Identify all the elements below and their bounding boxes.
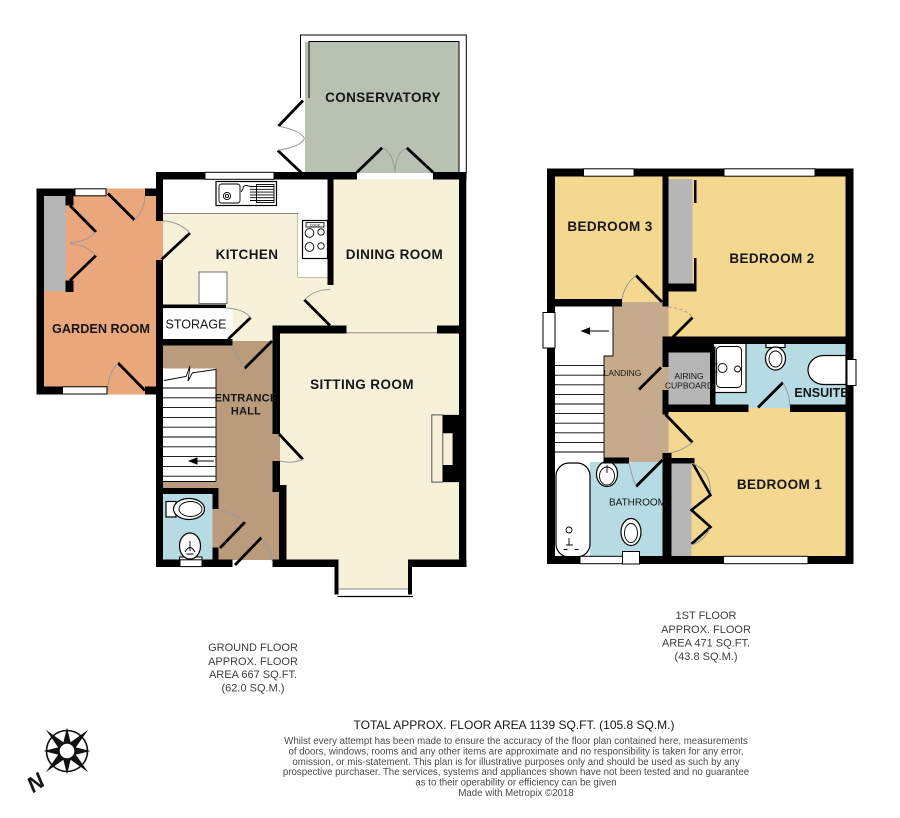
svg-text:COOK: COOK bbox=[310, 223, 321, 227]
svg-text:N: N bbox=[22, 767, 50, 797]
svg-text:AIRING: AIRING bbox=[674, 371, 703, 381]
svg-text:CUPBOARD: CUPBOARD bbox=[665, 381, 713, 391]
svg-text:KITCHEN: KITCHEN bbox=[216, 247, 279, 262]
svg-text:APPROX. FLOOR: APPROX. FLOOR bbox=[661, 624, 751, 636]
svg-text:BEDROOM 1: BEDROOM 1 bbox=[737, 477, 822, 492]
svg-text:LANDING: LANDING bbox=[604, 368, 642, 378]
svg-text:AREA 471 SQ.FT.: AREA 471 SQ.FT. bbox=[662, 638, 750, 650]
svg-text:as to their operability or eff: as to their operability or efficiency ca… bbox=[415, 778, 616, 789]
svg-text:TOTAL APPROX. FLOOR AREA 1139: TOTAL APPROX. FLOOR AREA 1139 SQ.FT. (10… bbox=[354, 718, 675, 732]
svg-text:BEDROOM 3: BEDROOM 3 bbox=[567, 219, 652, 234]
svg-text:(43.8 SQ.M.): (43.8 SQ.M.) bbox=[675, 651, 738, 663]
svg-text:ENTRANCE: ENTRANCE bbox=[215, 393, 278, 405]
svg-text:1ST FLOOR: 1ST FLOOR bbox=[676, 610, 737, 622]
svg-text:AREA 667 SQ.FT.: AREA 667 SQ.FT. bbox=[209, 669, 297, 681]
svg-text:ENSUITE: ENSUITE bbox=[794, 386, 848, 400]
svg-text:APPROX. FLOOR: APPROX. FLOOR bbox=[208, 656, 298, 668]
svg-text:STORAGE: STORAGE bbox=[166, 318, 227, 332]
svg-text:(62.0 SQ.M.): (62.0 SQ.M.) bbox=[222, 683, 285, 695]
svg-text:CONSERVATORY: CONSERVATORY bbox=[325, 90, 441, 105]
svg-text:GROUND FLOOR: GROUND FLOOR bbox=[208, 642, 298, 654]
svg-text:of doors, windows, rooms and a: of doors, windows, rooms and any other i… bbox=[289, 747, 744, 758]
svg-text:DINING ROOM: DINING ROOM bbox=[346, 247, 443, 262]
svg-text:BATHROOM: BATHROOM bbox=[609, 498, 666, 509]
svg-text:BEDROOM 2: BEDROOM 2 bbox=[729, 251, 814, 266]
svg-text:SITTING ROOM: SITTING ROOM bbox=[310, 377, 414, 392]
svg-text:HALL: HALL bbox=[231, 406, 261, 418]
svg-text:Made with Metropix ©2018: Made with Metropix ©2018 bbox=[458, 788, 573, 799]
svg-text:Whilst every attempt has been: Whilst every attempt has been made to en… bbox=[284, 736, 748, 747]
svg-text:prospective purchaser. The ser: prospective purchaser. The services, sys… bbox=[283, 767, 749, 778]
svg-text:GARDEN ROOM: GARDEN ROOM bbox=[52, 322, 150, 336]
